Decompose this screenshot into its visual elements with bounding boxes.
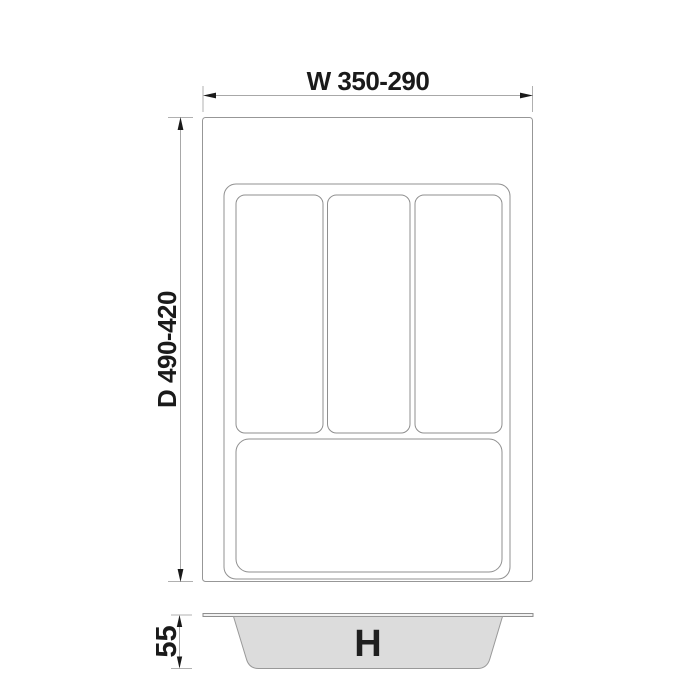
compartment-middle <box>328 195 411 433</box>
depth-dimension-label: D 490-420 <box>152 291 182 408</box>
width-dimension: W 350-290 <box>203 66 533 112</box>
compartment-left <box>236 195 323 433</box>
arrow-down-icon <box>178 569 184 582</box>
arrow-right-icon <box>520 93 533 99</box>
arrow-up-icon <box>177 615 182 627</box>
height-dimension: 55 <box>151 615 192 669</box>
top-view <box>203 118 533 582</box>
compartment-right <box>415 195 502 433</box>
dimension-drawing: W 350-290 D 490-420 H 55 <box>0 0 700 700</box>
cutlery-tray-diagram: W 350-290 D 490-420 H 55 <box>0 0 700 700</box>
compartment-bottom <box>236 439 502 572</box>
height-variable-label: H <box>354 623 381 665</box>
side-view: H <box>203 614 533 669</box>
depth-dimension: D 490-420 <box>152 117 193 582</box>
height-dimension-label: 55 <box>151 625 183 657</box>
arrow-up-icon <box>178 117 184 130</box>
width-dimension-label: W 350-290 <box>307 66 430 96</box>
arrow-left-icon <box>203 93 216 99</box>
